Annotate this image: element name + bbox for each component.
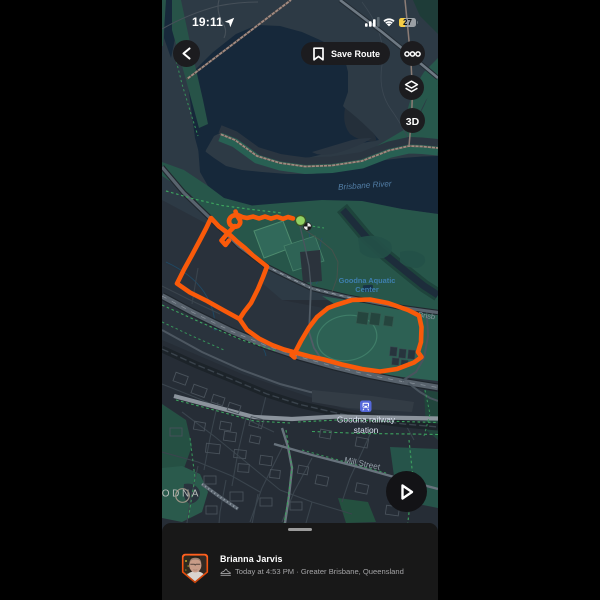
svg-text:Center: Center bbox=[355, 285, 379, 294]
svg-text:Goodna railway: Goodna railway bbox=[337, 415, 396, 425]
svg-text:GOODNA: GOODNA bbox=[162, 489, 201, 500]
svg-text:Goodna Aquatic: Goodna Aquatic bbox=[339, 276, 396, 285]
svg-text:3D: 3D bbox=[406, 116, 420, 127]
svg-text:station: station bbox=[354, 425, 379, 435]
